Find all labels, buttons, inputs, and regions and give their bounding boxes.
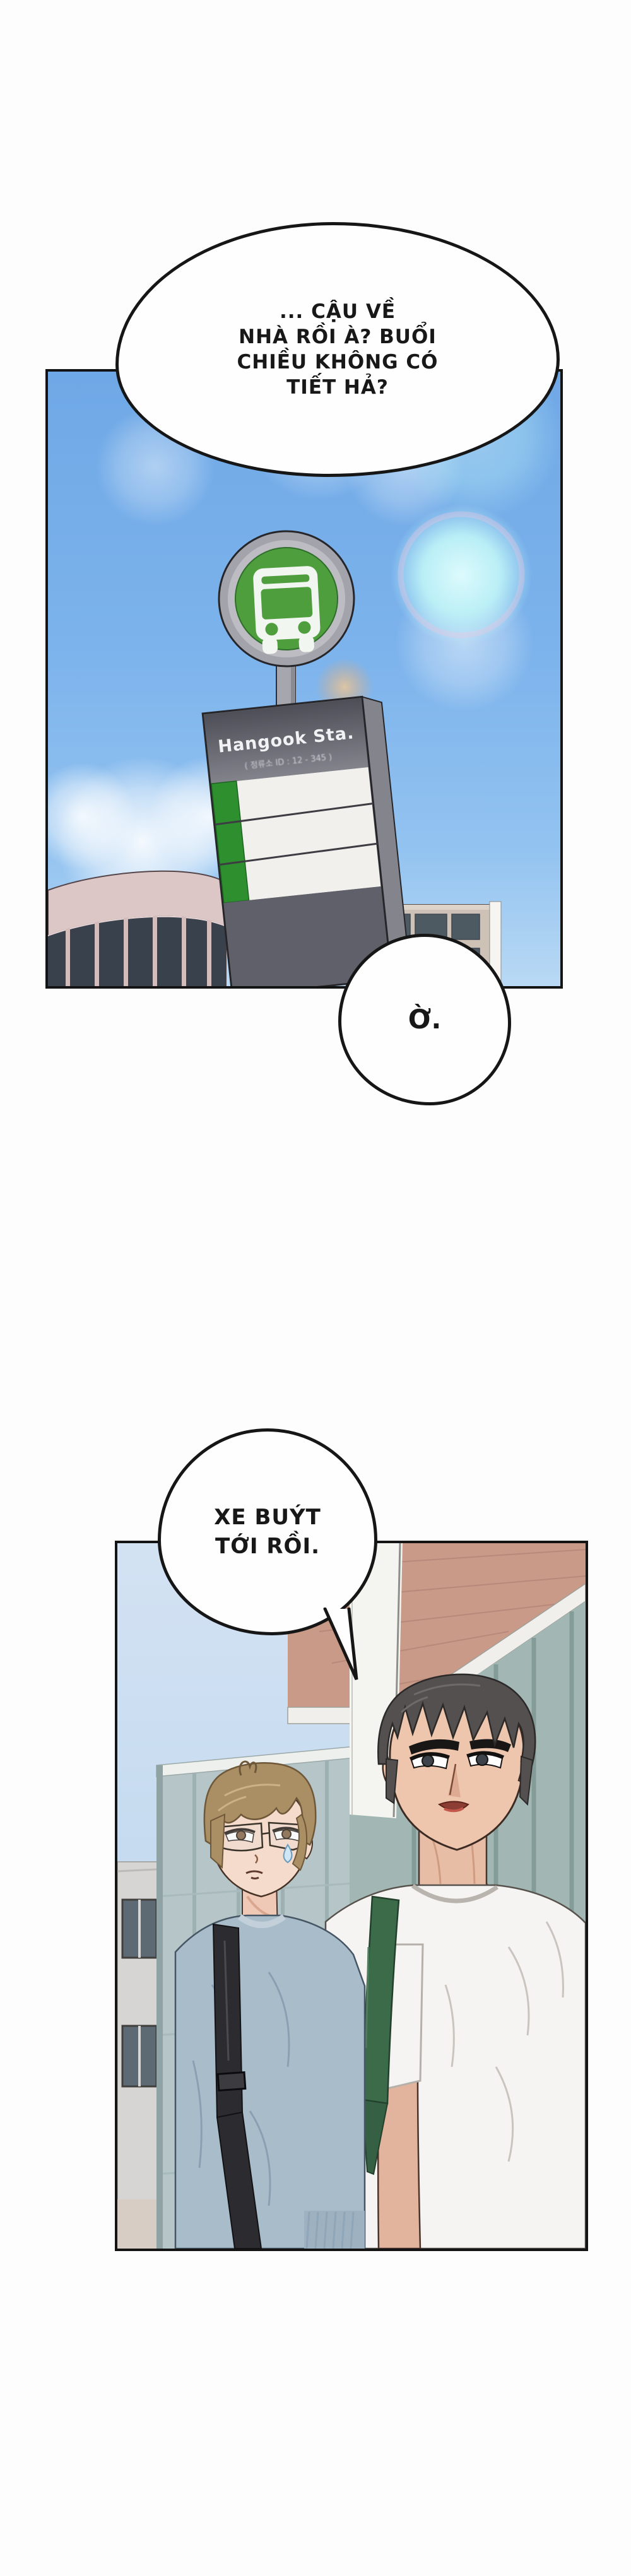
bubble-text: Ờ. [408, 1005, 442, 1034]
flare-cyan-big [391, 504, 532, 645]
speech-bubble-tail [319, 1608, 375, 1686]
bubble-line: TỚI RỒI. [215, 1532, 320, 1561]
strap-buckle [218, 2073, 245, 2091]
bubble-line: TIẾT HẢ? [286, 375, 389, 400]
speech-bubble-bus: XE BUÝT TỚI RỒI. [158, 1428, 377, 1635]
pink-building [48, 871, 226, 986]
speech-bubble-reply: Ờ. [338, 934, 511, 1105]
sign-board: Hangook Sta. ( 정류소 ID : 12 - 345 ) [203, 695, 410, 986]
bubble-line: CHIỀU KHÔNG CÓ [237, 350, 439, 375]
bubble-line: XE BUÝT [214, 1503, 321, 1532]
bubble-line: ... CẬU VỀ [280, 299, 396, 324]
eye-left [410, 1754, 449, 1768]
bubble-line: NHÀ RỒI À? BUỔI [239, 324, 437, 350]
speech-bubble-question: ... CẬU VỀ NHÀ RỒI À? BUỔI CHIỀU KHÔNG C… [115, 222, 560, 477]
glasses [212, 1823, 310, 1850]
